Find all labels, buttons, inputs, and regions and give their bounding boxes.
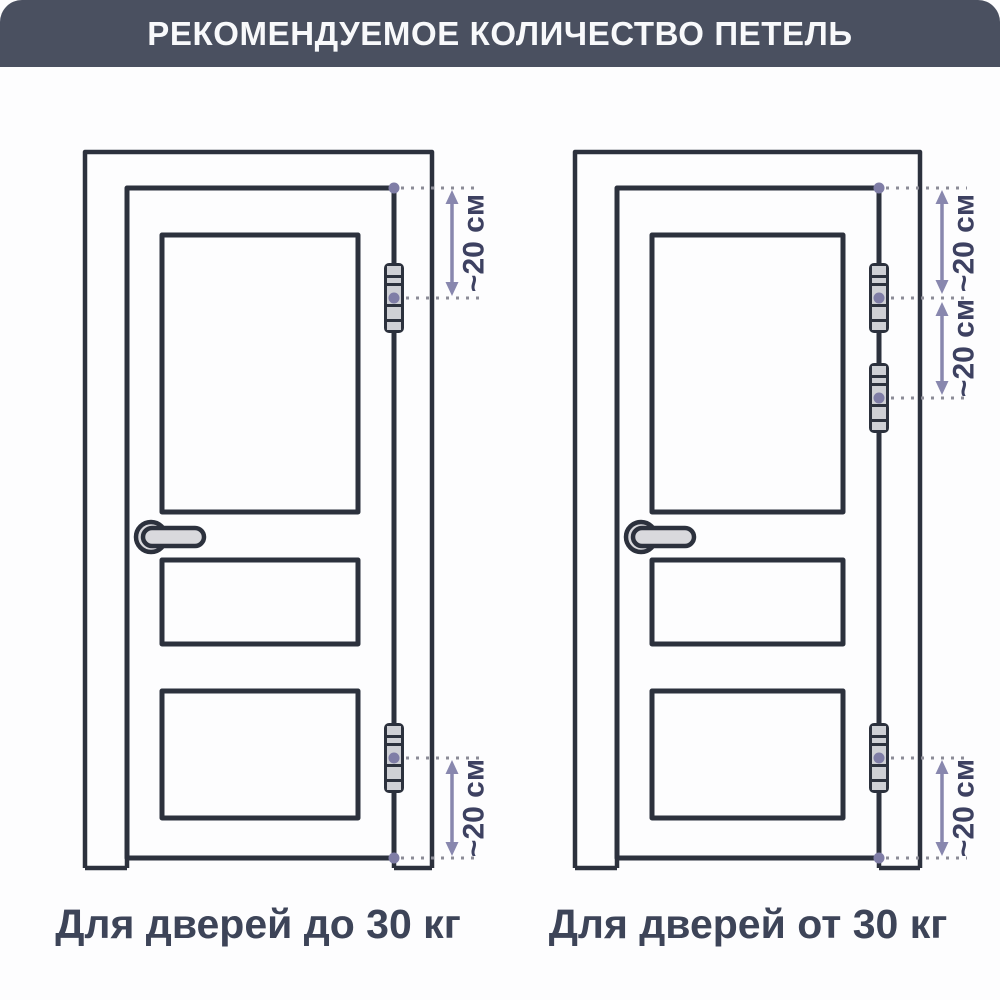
- handle-lever: [143, 528, 204, 546]
- door-handle: [136, 522, 204, 552]
- figure-door-up-to-30kg: ~20 см ~20 см: [85, 152, 491, 868]
- dimension-label: ~20 см: [948, 299, 981, 397]
- dimension-label: ~20 см: [948, 194, 981, 292]
- hinge-count-diagram: ~20 см ~20 см: [0, 0, 1000, 1000]
- frame-jamb-bottom-left: [575, 858, 617, 868]
- handle-lever: [633, 528, 694, 546]
- figure-door-over-30kg: ~20 см ~20 см: [575, 152, 981, 868]
- frame-jamb-bottom-left: [85, 858, 127, 868]
- dimension-label: ~20 см: [458, 194, 491, 292]
- dimension-bottom: ~20 см: [874, 753, 981, 864]
- door-leaf: [127, 188, 394, 858]
- infographic-poster: РЕКОМЕНДУЕМОЕ КОЛИЧЕСТВО ПЕТЕЛЬ: [0, 0, 1000, 1000]
- door-handle: [626, 522, 694, 552]
- dimension-label: ~20 см: [458, 759, 491, 857]
- reference-dots: [874, 393, 885, 404]
- dimension-top: ~20 см: [874, 183, 981, 304]
- dimension-label: ~20 см: [948, 759, 981, 857]
- frame-jamb-bottom-right: [879, 858, 920, 868]
- caption-door-up-to-30kg: Для дверей до 30 кг: [48, 901, 468, 948]
- dimension-middle: ~20 см: [874, 299, 981, 404]
- door-leaf: [617, 188, 879, 858]
- caption-door-over-30kg: Для дверей от 30 кг: [538, 901, 958, 948]
